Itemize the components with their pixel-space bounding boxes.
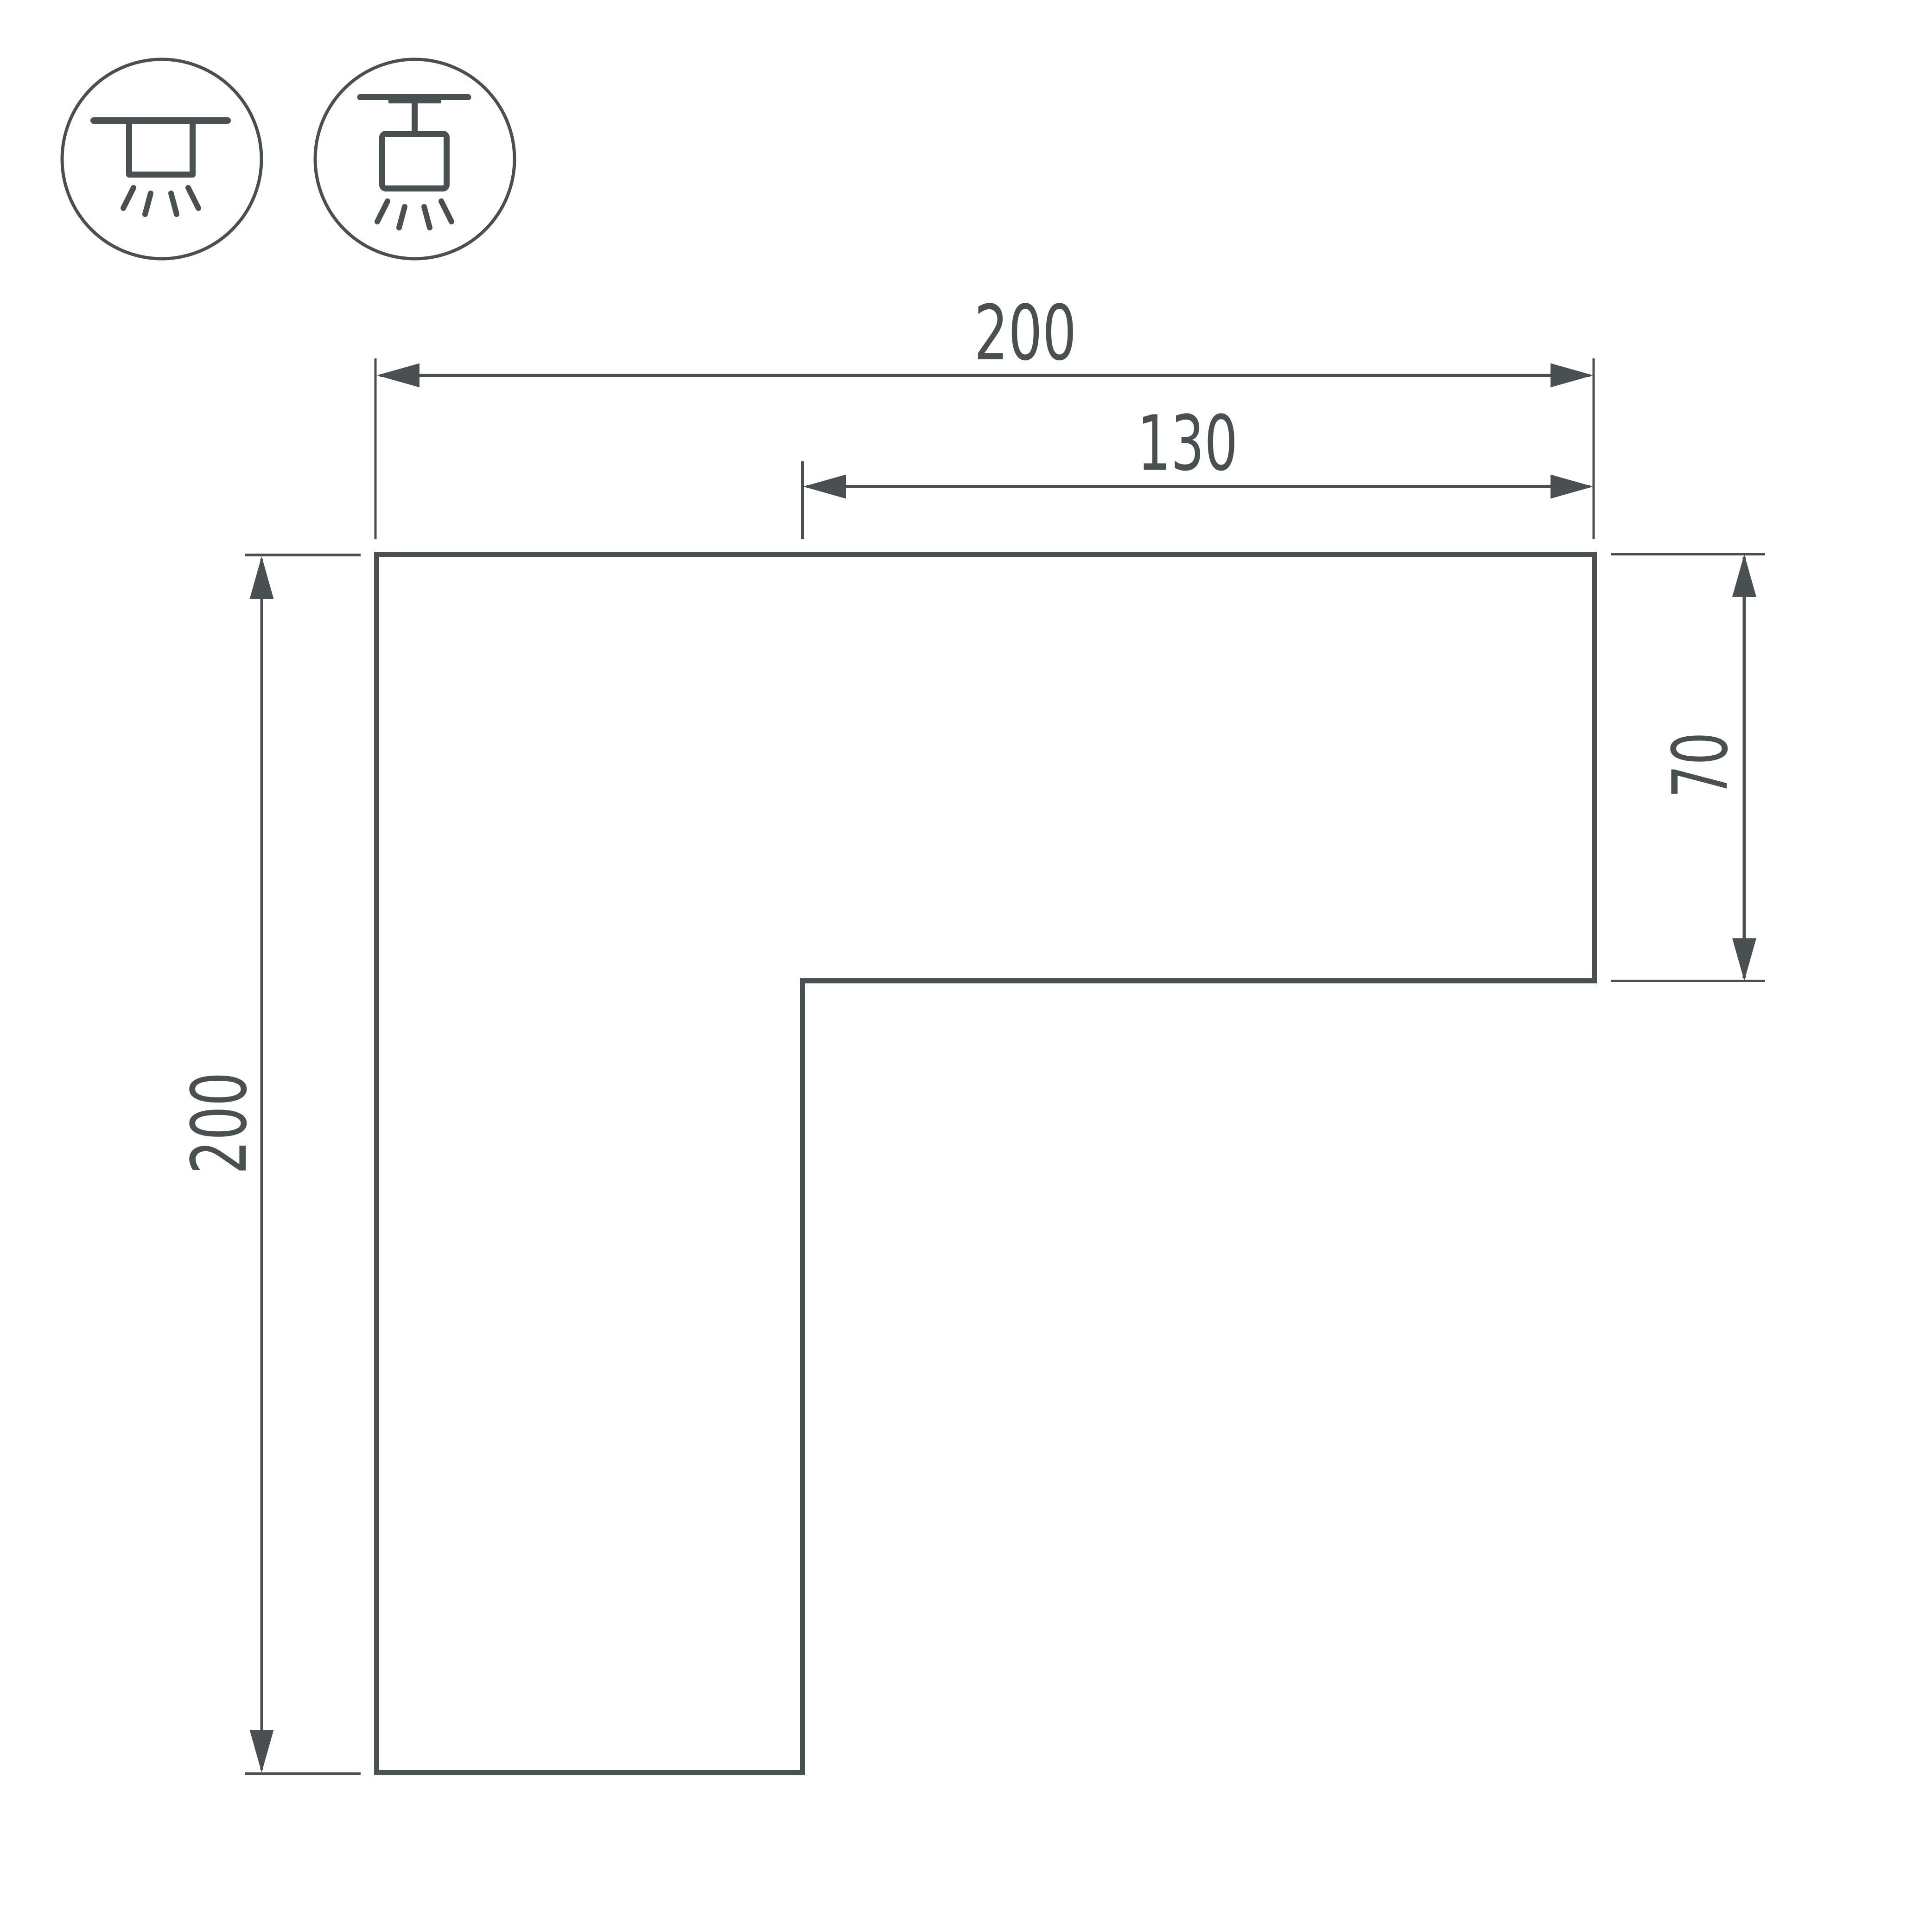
- arrowhead-down-icon: [1732, 938, 1756, 981]
- light-ray-icon: [188, 188, 198, 208]
- fixture-outline: [382, 134, 447, 189]
- dim-left-height-label: 200: [175, 1072, 264, 1174]
- light-ray-icon: [377, 201, 388, 222]
- mounting-icons: [62, 59, 515, 259]
- dim-top-width-label: 200: [974, 289, 1077, 377]
- light-rays: [123, 188, 198, 214]
- dim-inner-width: 130: [802, 399, 1593, 539]
- surface-mount-icon: [62, 59, 261, 259]
- light-ray-icon: [441, 201, 451, 222]
- arrowhead-up-icon: [1732, 555, 1756, 597]
- arrowhead-left-icon: [377, 363, 419, 388]
- light-ray-icon: [424, 207, 430, 228]
- dim-left-height: 200: [175, 555, 361, 1774]
- fixture-outline: [129, 123, 193, 175]
- dim-inner-width-label: 130: [1138, 399, 1238, 488]
- pendant-mount-icon: [315, 59, 515, 259]
- dim-top-width: 200: [375, 289, 1594, 539]
- arrowhead-right-icon: [1551, 363, 1593, 388]
- l-profile-outline: [377, 555, 1595, 1773]
- dim-right-height: 70: [1611, 555, 1765, 981]
- profile-drawing: 200 130 70 200: [175, 289, 1765, 1774]
- arrowhead-down-icon: [250, 1730, 274, 1773]
- light-ray-icon: [399, 207, 405, 228]
- arrowhead-right-icon: [1551, 475, 1593, 499]
- light-ray-icon: [145, 193, 151, 214]
- technical-drawing: 200 130 70 200: [0, 0, 1932, 1932]
- light-ray-icon: [123, 188, 133, 208]
- arrowhead-left-icon: [803, 475, 846, 499]
- light-rays: [377, 201, 451, 228]
- light-ray-icon: [171, 193, 177, 214]
- icon-circle: [62, 59, 261, 259]
- dim-right-height-label: 70: [1656, 732, 1745, 798]
- icon-circle: [315, 59, 515, 259]
- arrowhead-up-icon: [250, 556, 274, 599]
